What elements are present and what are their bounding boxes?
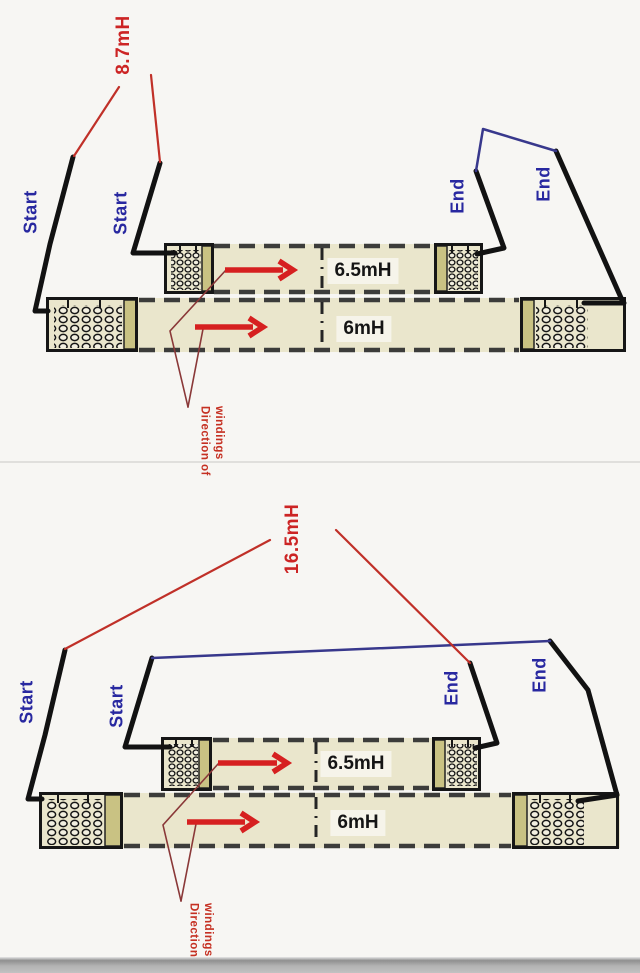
- coil-2-top-right: [433, 738, 480, 790]
- coil-1-top-right: [435, 244, 482, 293]
- lead-label-1-inner-end: End: [448, 178, 469, 214]
- diagram-1-graphics: [35, 75, 625, 407]
- lead-label-1-outer-start: Start: [21, 190, 42, 234]
- start-to-end-link-wire-2: [152, 641, 550, 658]
- direction-note-1: Direction of windings: [197, 406, 226, 476]
- winding-value-label-1b: 6mH: [336, 316, 391, 342]
- measurement-label-1: 8.7mH: [113, 15, 135, 75]
- direction-note-1-line2: windings: [211, 406, 225, 476]
- lead-label-1-outer-end: End: [534, 166, 555, 202]
- coil-2-bottom-left: [40, 793, 122, 848]
- coil-1-bottom-left: [47, 298, 137, 351]
- lead-label-2-inner-start: Start: [107, 684, 128, 728]
- inductor-winding-diagrams: 8.7mH Start Start End End 6.5mH 6mH Dire…: [0, 0, 640, 973]
- lead-label-2-outer-start: Start: [17, 680, 38, 724]
- lead-label-2-outer-end: End: [530, 657, 551, 693]
- lead-label-2-inner-end: End: [442, 670, 463, 706]
- measurement-leaders-2: [65, 530, 470, 663]
- bottom-edge-strip: [0, 957, 640, 973]
- coil-1-bottom-right: [521, 298, 625, 351]
- measurement-leaders-1: [74, 75, 160, 162]
- winding-value-label-2b: 6mH: [330, 810, 385, 836]
- end-to-end-link-wire-1: [476, 129, 556, 171]
- lead-label-1-inner-start: Start: [111, 191, 132, 235]
- winding-value-label-1a: 6.5mH: [327, 258, 398, 284]
- winding-value-label-2a: 6.5mH: [320, 751, 391, 777]
- direction-note-1-line1: Direction of: [197, 406, 211, 476]
- coil-2-bottom-right: [513, 793, 618, 848]
- image-divider: [0, 461, 640, 463]
- schematic-graphics: [0, 0, 640, 973]
- measurement-label-2: 16.5mH: [282, 504, 304, 575]
